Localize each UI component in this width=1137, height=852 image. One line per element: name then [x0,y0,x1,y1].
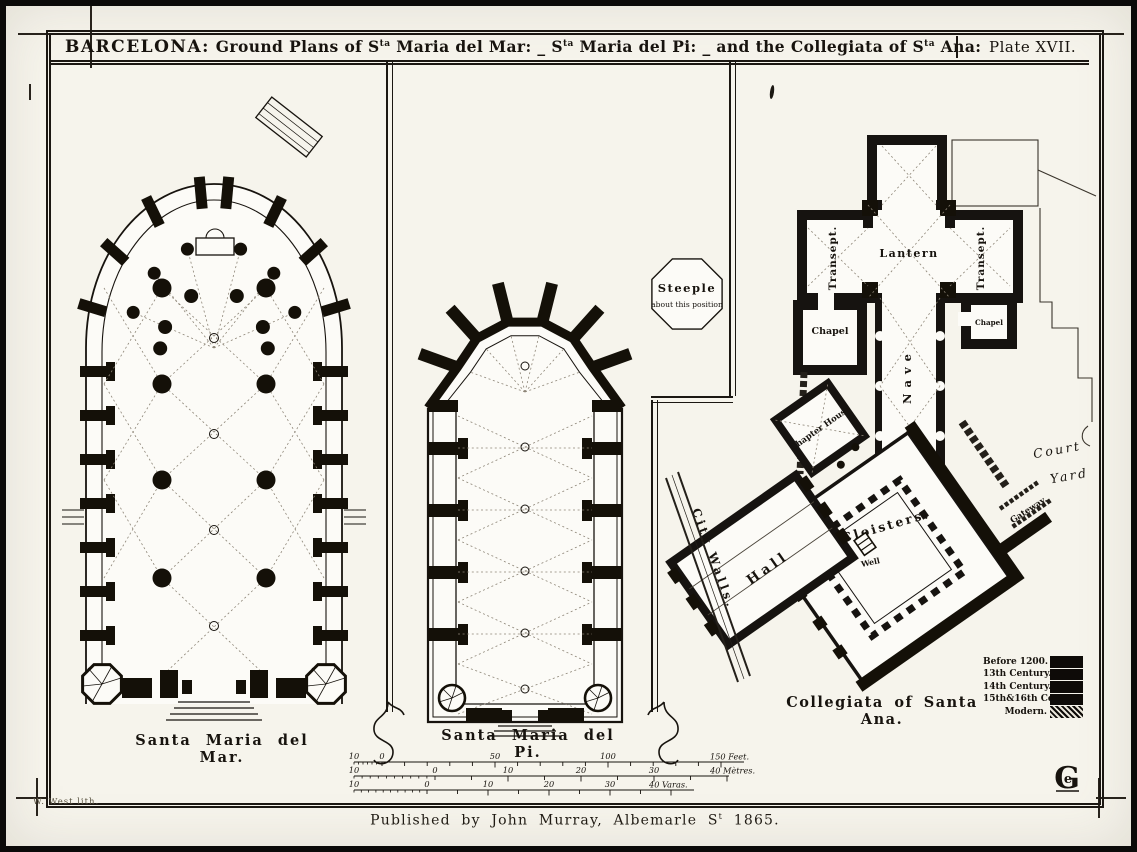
publication-line: Published by John Murray, Albemarle St 1… [340,812,810,829]
scale-number: 20 [575,765,586,775]
legend-swatch-14th [1050,681,1083,693]
scale-bar-feet [354,762,744,768]
trim-mark [29,84,31,100]
title-city: BARCELONA: [65,37,210,57]
title-band: BARCELONA: Ground Plans of Sta Maria del… [51,35,1089,65]
divider-pi-ana-lower [651,400,658,712]
court-label-line1: Court [1032,438,1083,461]
court-label-line2: Yard [1049,465,1090,486]
nave-label: Nave [900,348,914,404]
scale-number: 0 [432,765,437,775]
scale-number: 50 [490,752,500,761]
ink-mark [769,85,775,99]
legend-swatch-modern [1050,706,1083,718]
chapel-left-label: Chapel [812,326,849,337]
scale-end-label-varas: 40 Varas. [648,780,688,790]
scale-number: 30 [605,779,615,789]
ana-caption: Collegiata of Santa Ana. [782,694,982,728]
scale-number: 10 [349,752,359,761]
plate-paper: BARCELONA: Ground Plans of Sta Maria del… [0,0,1137,852]
mar-walls [79,177,349,704]
scale-number: 30 [649,765,659,775]
scale-number: 100 [600,752,616,761]
title-separator-rule [956,36,958,58]
mar-caption: Santa Maria del Mar. [132,732,312,766]
transept-left-label: Transept. [827,226,839,290]
superscript: ta [563,39,574,49]
transept-right-label: Transept. [975,226,987,290]
svg-text:e: e [1064,772,1072,787]
lithographer-credit: W. West lith. [33,797,99,807]
legend-row: 13th Century. [983,669,1095,681]
ana-plan-drawing: Chapter House Cloisters. Well [658,76,1100,716]
scale-number: 0 [379,752,384,761]
legend-swatch-15-16th [1050,694,1083,706]
scale-number: 10 [349,765,359,775]
pi-plan-drawing [406,216,644,738]
legend-swatch-before-1200 [1050,656,1083,668]
scale-bar-varas [354,790,694,796]
scale-end-label-feet: 150 Feet. [710,752,749,762]
scale-number: 10 [349,779,359,789]
chapel-right-label: Chapel [975,318,1003,327]
scale-number: 0 [424,779,429,789]
mar-plan-drawing [56,86,372,738]
legend-row: Modern. [983,706,1095,718]
legend-row: 15th&16th Centy [983,694,1095,706]
scale-number: 20 [543,779,554,789]
legend-swatch-13th [1050,669,1083,681]
legend-row: 14th Century. [983,681,1095,693]
period-legend: Before 1200. 13th Century. 14th Century.… [983,656,1095,719]
legend-row: Before 1200. [983,656,1095,668]
scale-number: 10 [503,765,513,775]
mar-sacristy [256,97,322,157]
plate-number: Plate XVII. [989,38,1076,56]
divider-mar-pi [386,62,393,712]
scale-number: 10 [483,779,493,789]
scale-bars: 10 0 50 100 150 Feet. 10 0 10 20 30 40 M… [344,752,776,806]
superscript: ta [380,39,391,49]
superscript: ta [924,39,935,49]
plate-title: BARCELONA: Ground Plans of Sta Maria del… [65,37,981,57]
lantern-label: Lantern [879,247,938,260]
artist-monogram: G e [1048,754,1088,800]
scale-end-label-metres: 40 Mètres. [709,766,755,776]
